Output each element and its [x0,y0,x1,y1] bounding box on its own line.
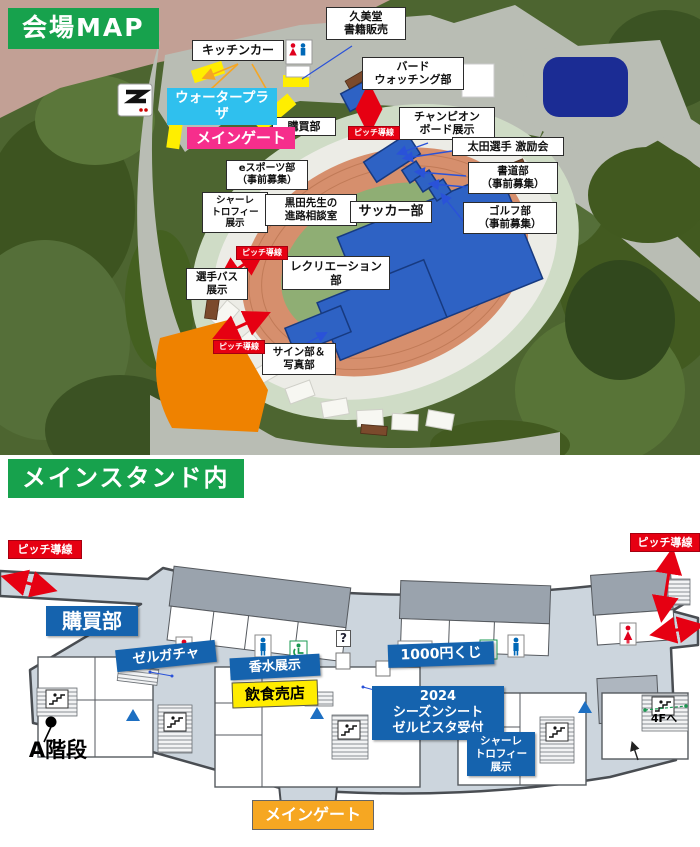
label-1000yen-lottery: 1000円くじ [388,641,495,668]
label-main-gate-stand: メインゲート [252,800,374,830]
main-stand-banner: メインスタンド内 [8,459,244,498]
label-main-gate-map: メインゲート [187,127,295,149]
label-water-plaza: ウォータープラザ [167,88,277,125]
label-kitchen-car: キッチンカー [192,40,284,61]
label-recreation-club: レクリエーション部 [282,256,390,290]
main-stand-floorplan [0,455,700,847]
badge-pitch-route-3: ピッチ導線 [213,340,265,354]
restroom-top-map [286,40,312,77]
label-schale-trophy-stand: シャーレ トロフィー 展示 [467,732,535,776]
male-restroom-icon [255,635,271,657]
label-calligraphy-club: 書道部 （事前募集） [468,162,558,194]
label-perfume-display: 香水展示 [229,654,320,681]
blank-building [462,64,494,97]
label-bird-watching: バード ウォッチング部 [362,57,464,90]
label-player-bus: 選手バス 展示 [186,268,248,300]
event-venue-map-page: 会場MAP キッチンカー 久美堂 書籍販売 バード ウォッチング部 チャンピオン… [0,0,700,847]
label-a-stairs: A階段 [18,738,98,764]
label-champion-board: チャンピオン ボード展示 [399,107,495,140]
badge-pitch-route-2: ピッチ導線 [236,246,288,260]
label-kuroda-room: 黒田先生の 進路相談室 [265,194,357,226]
badge-pitch-route-1: ピッチ導線 [348,126,400,140]
label-ota-support: 太田選手 激励会 [452,137,564,156]
label-kumido-books: 久美堂 書籍販売 [326,7,406,40]
pond [543,57,628,117]
badge-pitch-route-left: ピッチ導線 [8,540,82,559]
venue-aerial-map [0,0,700,455]
venue-map-banner: 会場MAP [8,8,159,49]
male-restroom-icon [508,635,524,657]
label-sign-photo: サイン部＆ 写真部 [262,343,336,375]
info-icon: ? [336,630,351,647]
label-schale-trophy-map: シャーレ トロフィー 展示 [202,192,268,233]
small-facility-box [336,653,350,669]
female-restroom-icon [620,623,636,645]
zelvia-logo [118,84,152,116]
label-esports-club: eスポーツ部 （事前募集） [226,160,308,190]
label-golf-club: ゴルフ部 （事前募集） [463,202,557,234]
label-soccer-club: サッカー部 [350,201,432,223]
label-purchasing-dept-stand: 購買部 [46,606,138,636]
badge-pitch-route-right: ピッチ導線 [630,533,700,552]
label-food-shop: 飲食売店 [232,680,319,709]
label-to-4f: 4Fへ [644,712,684,725]
